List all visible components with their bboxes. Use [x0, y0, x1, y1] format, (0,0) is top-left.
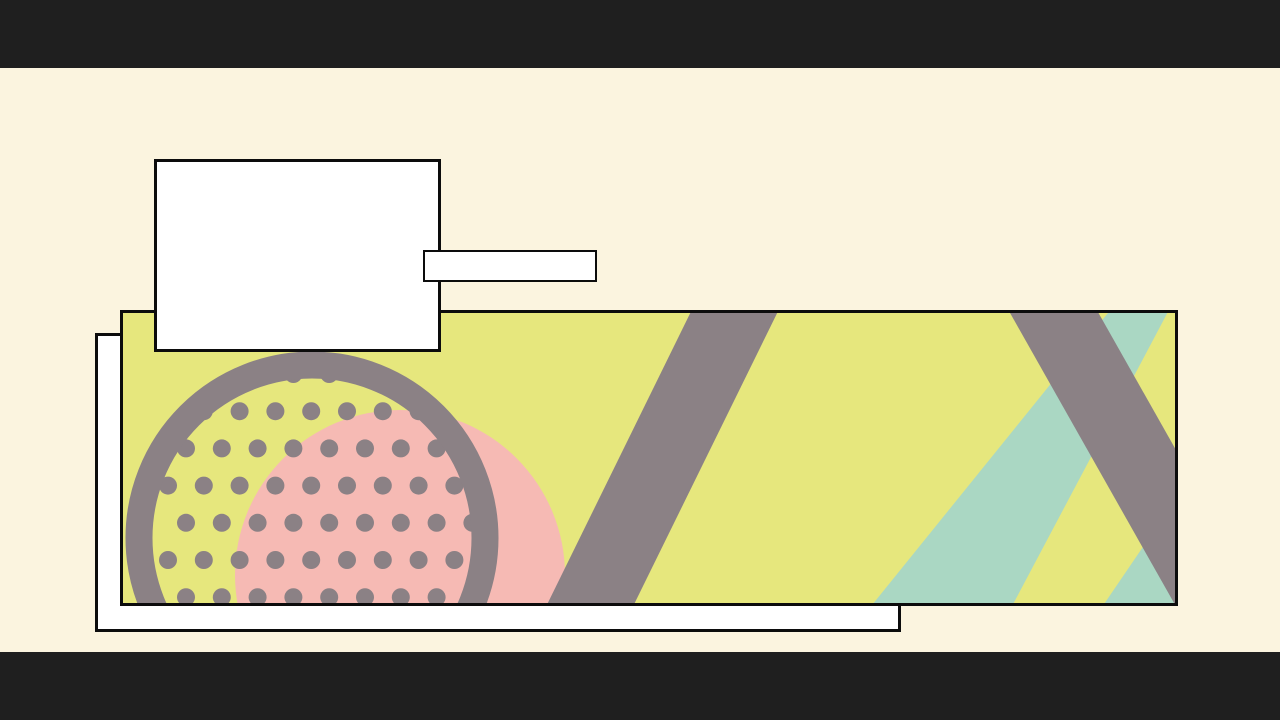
polka-dot: [302, 551, 320, 569]
polka-dot: [356, 439, 374, 457]
polka-dot: [392, 439, 410, 457]
polka-dot: [159, 551, 177, 569]
polka-dot: [374, 551, 392, 569]
polka-dot: [195, 477, 213, 495]
polka-dot: [249, 439, 267, 457]
polka-dot: [338, 477, 356, 495]
polka-dot: [338, 551, 356, 569]
gray-stripe-left: [578, 313, 747, 603]
title-placeholder-box: [154, 159, 441, 352]
polka-dot: [410, 477, 428, 495]
polka-dot: [302, 477, 320, 495]
polka-dot: [320, 514, 338, 532]
banner-panel: [120, 310, 1178, 606]
polka-dot: [410, 551, 428, 569]
pink-circle: [235, 410, 565, 603]
polka-dot: [231, 551, 249, 569]
polka-dot: [356, 514, 374, 532]
polka-dot: [392, 514, 410, 532]
polka-dot: [231, 477, 249, 495]
video-frame: [0, 0, 1280, 720]
polka-dot: [320, 439, 338, 457]
subtitle-placeholder-bar: [423, 250, 597, 282]
polka-dot: [374, 402, 392, 420]
polka-dot: [266, 402, 284, 420]
letterbox-top-bar: [0, 0, 1280, 68]
polka-dot: [177, 588, 195, 603]
polka-dot: [284, 439, 302, 457]
polka-dot: [213, 514, 231, 532]
polka-dot: [195, 551, 213, 569]
polka-dot: [266, 551, 284, 569]
polka-dot: [302, 402, 320, 420]
polka-dot: [338, 402, 356, 420]
polka-dot: [445, 551, 463, 569]
polka-dot: [213, 588, 231, 603]
polka-dot: [428, 514, 446, 532]
banner-artwork: [123, 313, 1175, 603]
polka-dot: [266, 477, 284, 495]
polka-dot: [177, 514, 195, 532]
polka-dot: [213, 439, 231, 457]
polka-dot: [374, 477, 392, 495]
polka-dot: [284, 514, 302, 532]
polka-dot: [249, 514, 267, 532]
letterbox-bottom-bar: [0, 652, 1280, 720]
polka-dot: [231, 402, 249, 420]
